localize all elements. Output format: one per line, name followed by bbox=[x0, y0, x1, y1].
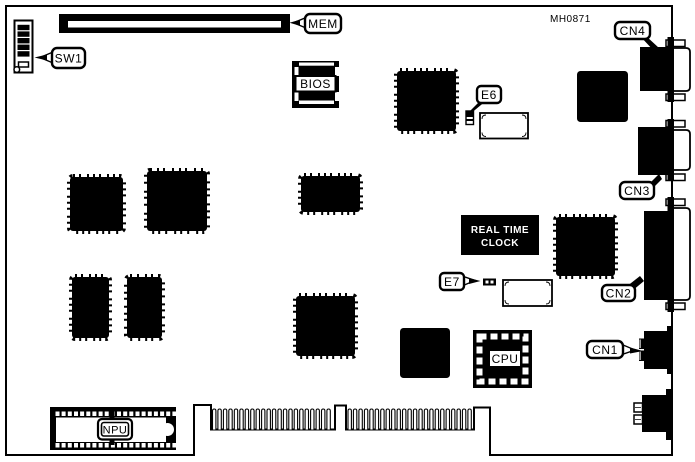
svg-text:MEM: MEM bbox=[308, 17, 338, 31]
svg-text:CN1: CN1 bbox=[592, 343, 618, 357]
svg-text:E6: E6 bbox=[481, 88, 497, 102]
svg-text:CPU: CPU bbox=[492, 352, 519, 366]
svg-text:REAL TIME: REAL TIME bbox=[471, 225, 529, 236]
svg-text:E7: E7 bbox=[444, 275, 460, 289]
svg-text:CLOCK: CLOCK bbox=[481, 238, 519, 249]
svg-text:CN2: CN2 bbox=[606, 287, 632, 301]
svg-text:MH0871: MH0871 bbox=[550, 14, 591, 25]
svg-text:NPU: NPU bbox=[103, 425, 128, 437]
svg-text:CN3: CN3 bbox=[624, 184, 650, 198]
svg-text:CN4: CN4 bbox=[620, 24, 646, 38]
svg-text:BIOS: BIOS bbox=[300, 77, 331, 91]
svg-text:SW1: SW1 bbox=[55, 52, 83, 66]
